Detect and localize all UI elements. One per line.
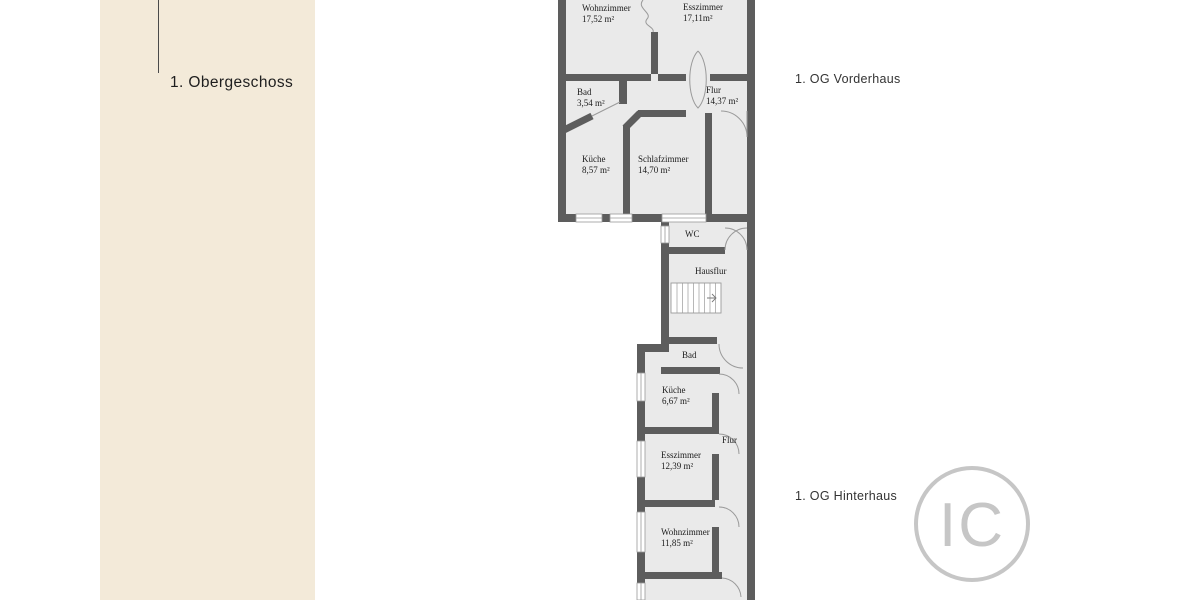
- room-label-schlafzimmer-vorderhaus: Schlafzimmer 14,70 m²: [638, 154, 688, 175]
- hinterhaus-floor: [637, 344, 755, 600]
- room-label-bad-vorderhaus: Bad 3,54 m²: [577, 87, 605, 108]
- ic-logo-text: IC: [939, 491, 1005, 560]
- room-label-wohnzimmer-vorderhaus: Wohnzimmer 17,52 m²: [582, 3, 631, 24]
- room-label-kueche-vorderhaus: Küche 8,57 m²: [582, 154, 610, 175]
- room-label-flur-hinterhaus: Flur: [722, 435, 737, 446]
- floor-index-rule: [158, 0, 159, 73]
- room-label-esszimmer-vorderhaus: Esszimmer 17,11m²: [683, 2, 723, 23]
- room-label-esszimmer-hinterhaus: Esszimmer 12,39 m²: [661, 450, 701, 471]
- room-label-flur-vorderhaus: Flur 14,37 m²: [706, 85, 738, 106]
- room-label-wc: WC: [685, 229, 700, 240]
- floor-title: 1. Obergeschoss: [170, 74, 293, 92]
- section-label-vorderhaus: 1. OG Vorderhaus: [795, 72, 901, 86]
- staircase: [671, 283, 721, 313]
- ic-logo: IC: [912, 464, 1032, 584]
- section-label-hinterhaus: 1. OG Hinterhaus: [795, 489, 897, 503]
- room-label-kueche-hinterhaus: Küche 6,67 m²: [662, 385, 690, 406]
- room-label-bad-hinterhaus: Bad: [682, 350, 697, 361]
- room-label-hausflur: Hausflur: [695, 266, 727, 277]
- room-label-wohnzimmer-hinterhaus: Wohnzimmer 11,85 m²: [661, 527, 710, 548]
